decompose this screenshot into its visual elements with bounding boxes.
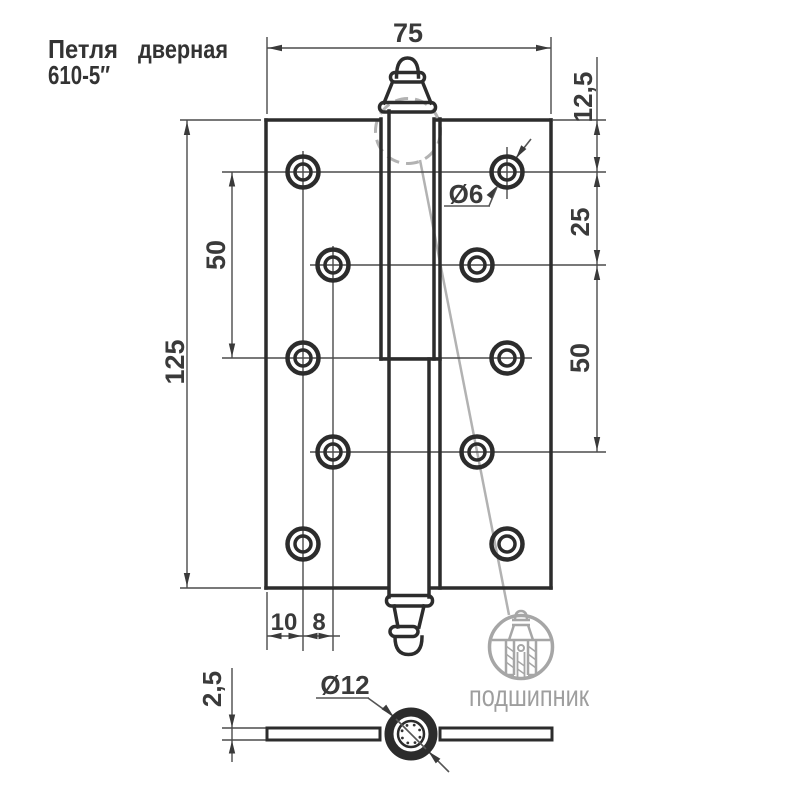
hinge-drawing-page: подшипник: [0, 0, 800, 800]
title-model-number: 610-5″: [48, 60, 110, 90]
dim-25: 25: [565, 208, 595, 237]
brand-logo-icon: [490, 611, 553, 679]
dim-12-5: 12,5: [568, 72, 598, 123]
dim-d12: Ø12: [320, 670, 369, 700]
dim-d6: Ø6: [449, 179, 484, 209]
dim-75: 75: [393, 18, 423, 48]
knuckle-section: [389, 712, 433, 756]
dim-50-left: 50: [201, 240, 231, 270]
dim-125: 125: [160, 339, 190, 384]
top-finial: [380, 58, 436, 112]
watermark-brand-text: подшипник: [469, 680, 590, 713]
bottom-view: [267, 712, 552, 756]
title-product-name2: дверная: [138, 34, 228, 64]
front-view: [266, 58, 551, 655]
left-leaf-section: [267, 728, 380, 740]
right-leaf-section: [440, 728, 552, 740]
hinge-technical-drawing: подшипник: [0, 0, 800, 800]
construction-lines: [180, 37, 606, 762]
dim-10: 10: [271, 609, 298, 636]
dimension-arrows: [184, 45, 600, 764]
dim-8: 8: [312, 609, 325, 636]
detail-callout-circle: [376, 99, 441, 164]
dim-2-5: 2,5: [197, 671, 227, 707]
bottom-finial: [387, 596, 433, 655]
dim-50-right: 50: [565, 343, 595, 373]
